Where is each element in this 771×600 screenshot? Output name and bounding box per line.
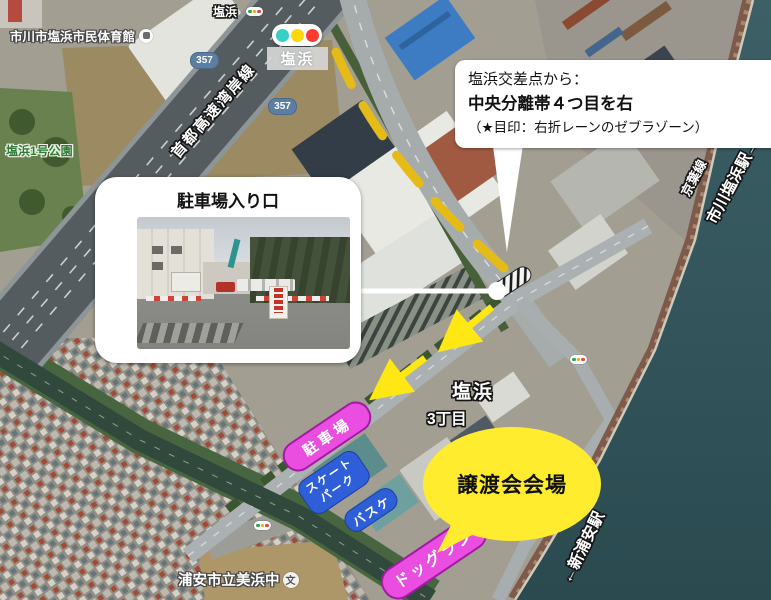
photo-red-car — [216, 282, 235, 293]
traffic-light-icon — [272, 24, 322, 46]
venue-bubble: 譲渡会会場 — [423, 427, 601, 541]
direction-note-line1: 塩浜交差点から： — [468, 68, 770, 91]
district-label: 3丁目 — [427, 407, 467, 429]
photo-crosswalk — [137, 323, 244, 343]
photo-callout: 駐車場入り口 — [95, 177, 361, 363]
direction-note-line3: （★目印：右折レーンのゼブラゾーン） — [468, 117, 770, 139]
photo-title: 駐車場入り口 — [95, 187, 361, 212]
school-name: 浦安市立美浜中 — [178, 569, 280, 590]
route-357-shield: 357 — [268, 98, 297, 115]
venue-label: 譲渡会会場 — [457, 469, 567, 499]
traffic-signal-icon — [254, 521, 271, 530]
photo-trees — [250, 237, 350, 303]
parking-entrance-photo — [137, 217, 350, 349]
gymnasium-icon — [139, 29, 153, 43]
intersection-name-label: 塩浜 — [452, 377, 494, 404]
traffic-signal-icon — [246, 7, 263, 16]
direction-note-callout: 塩浜交差点から： 中央分離帯４つ目を右 （★目印：右折レーンのゼブラゾーン） — [455, 60, 771, 148]
photo-red-sign — [269, 286, 288, 320]
pointer-dot — [488, 282, 506, 300]
traffic-signal-icon — [570, 355, 587, 364]
station-area-badge: 塩浜 — [267, 47, 328, 70]
route-357-shield: 357 — [190, 52, 219, 69]
photo-barrier-gate — [256, 296, 328, 301]
gymnasium-name: 市川市塩浜市民体育館 — [10, 26, 135, 45]
photo-barrier-gate — [146, 296, 201, 301]
signal-name-label: 塩浜 — [213, 3, 237, 20]
poi-gymnasium-label: 市川市塩浜市民体育館 — [10, 26, 153, 45]
annotated-map: 市川市塩浜市民体育館 塩浜 塩浜 357 357 首都高速湾岸線 塩浜1号公園 … — [0, 0, 771, 600]
school-icon: 文 — [283, 572, 299, 588]
direction-note-line2: 中央分離帯４つ目を右 — [468, 91, 770, 117]
school-label: 浦安市立美浜中 文 — [178, 569, 299, 590]
park-label: 塩浜1号公園 — [6, 142, 73, 159]
